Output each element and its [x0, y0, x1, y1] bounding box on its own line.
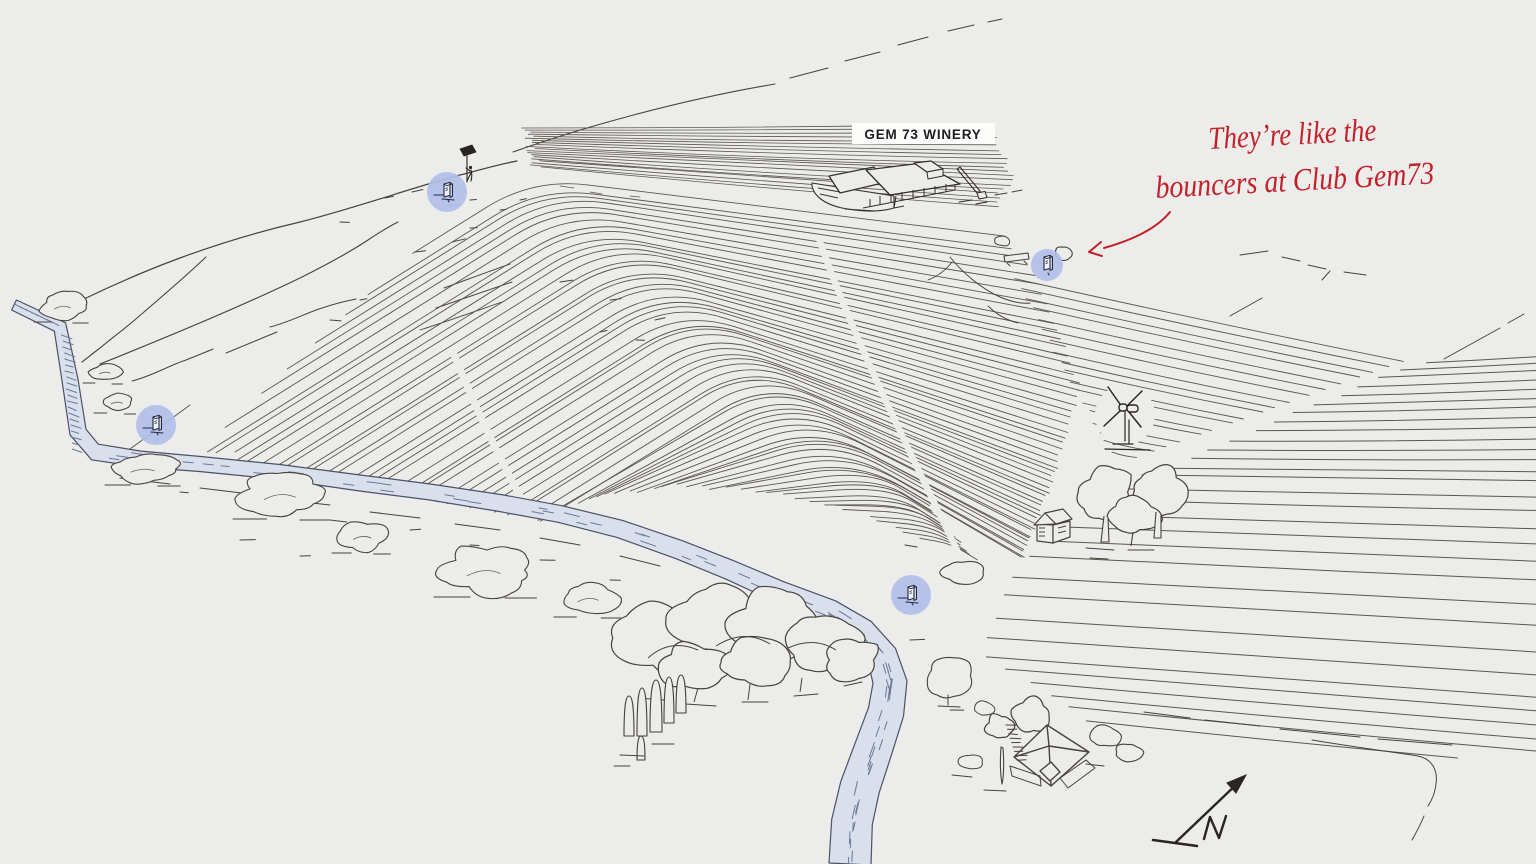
svg-text:GEM 73 WINERY: GEM 73 WINERY	[864, 127, 981, 142]
